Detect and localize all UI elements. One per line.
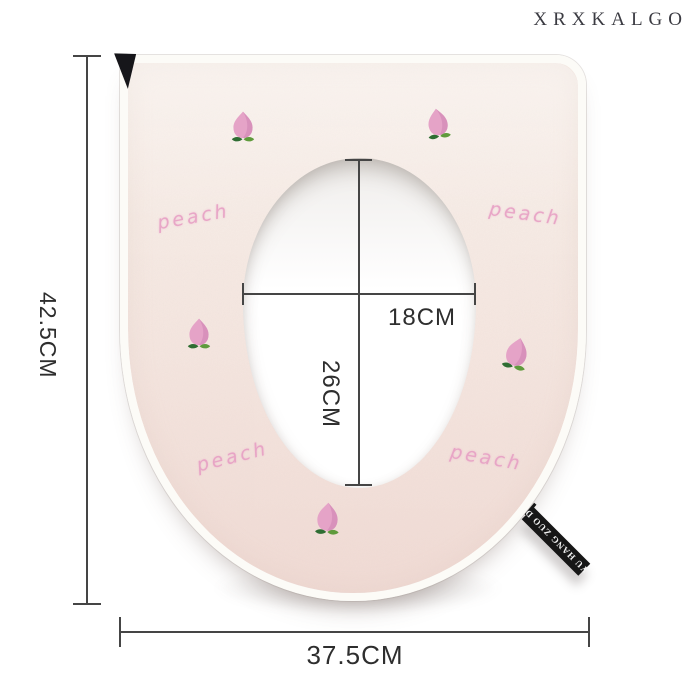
dimension-tick — [345, 159, 372, 161]
dimension-tick — [242, 283, 244, 305]
product-photo-stage: XRXKALGO YU HANG ZUO D — [0, 0, 700, 700]
peach-embroidery-icon — [313, 500, 342, 537]
width-dimension-label: 37.5CM — [120, 642, 590, 668]
dimension-tick — [73, 603, 101, 605]
height-dimension-label: 42.5CM — [36, 292, 59, 379]
inner-height-dimension-label: 26CM — [318, 360, 342, 428]
brand-watermark: XRXKALGO — [533, 9, 688, 31]
dimension-line — [86, 56, 88, 604]
dimension-tick — [345, 484, 372, 486]
inner-width-dimension-label: 18CM — [388, 306, 456, 330]
peach-embroidery-icon — [423, 105, 453, 142]
dimension-line — [358, 160, 360, 485]
dimension-line — [120, 631, 590, 633]
dimension-tick — [73, 55, 101, 57]
peach-embroidery-icon — [230, 110, 256, 144]
dimension-tick — [474, 283, 476, 305]
brand-tag-label: YU HANG ZUO D — [522, 508, 590, 576]
brand-tag: YU HANG ZUO D — [522, 507, 591, 576]
peach-embroidery-icon — [186, 317, 212, 351]
